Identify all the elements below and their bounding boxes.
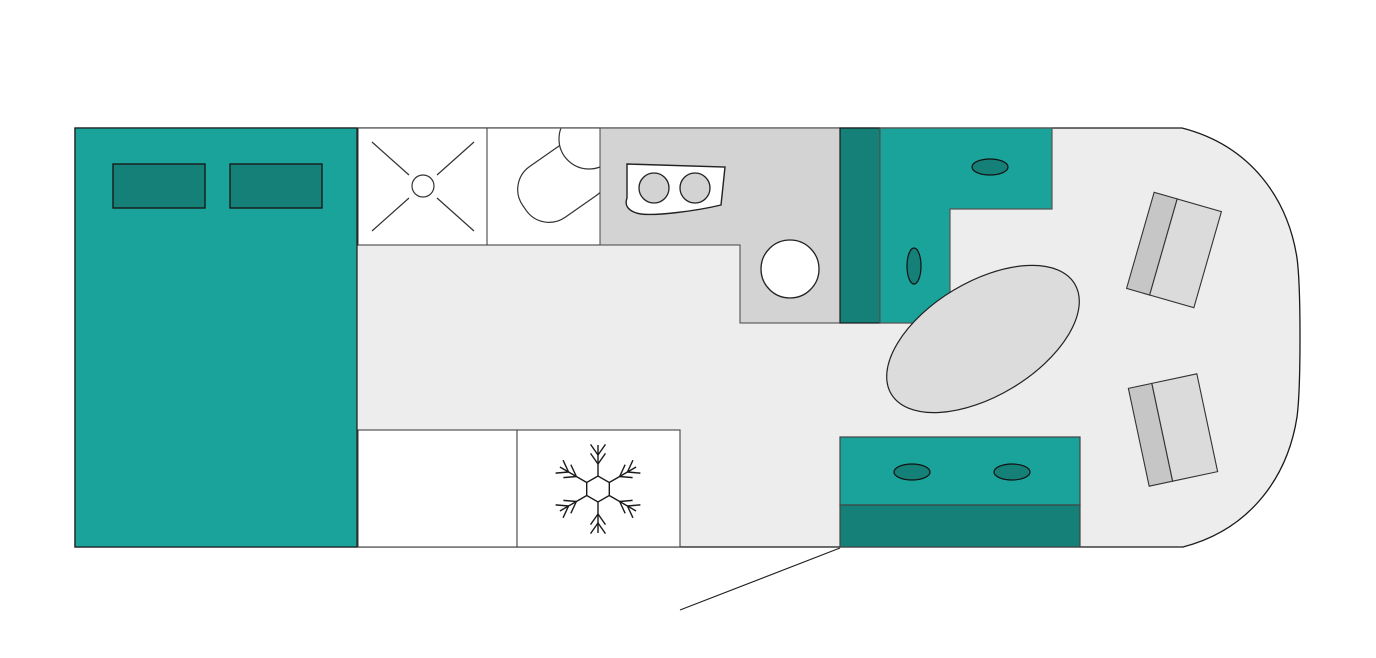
storage-cabinet <box>358 430 517 547</box>
stove <box>626 164 725 214</box>
wardrobe <box>840 128 880 323</box>
toilet-room <box>487 109 619 245</box>
floorplan <box>0 0 1376 658</box>
sink <box>761 240 819 298</box>
bed-pillow-left <box>113 164 205 208</box>
bed-pillow-right <box>230 164 322 208</box>
floor-plan-canvas <box>0 0 1376 658</box>
entry-door-swing-line <box>680 548 840 610</box>
shower-tray <box>358 128 487 245</box>
entry-bench <box>840 437 1080 547</box>
